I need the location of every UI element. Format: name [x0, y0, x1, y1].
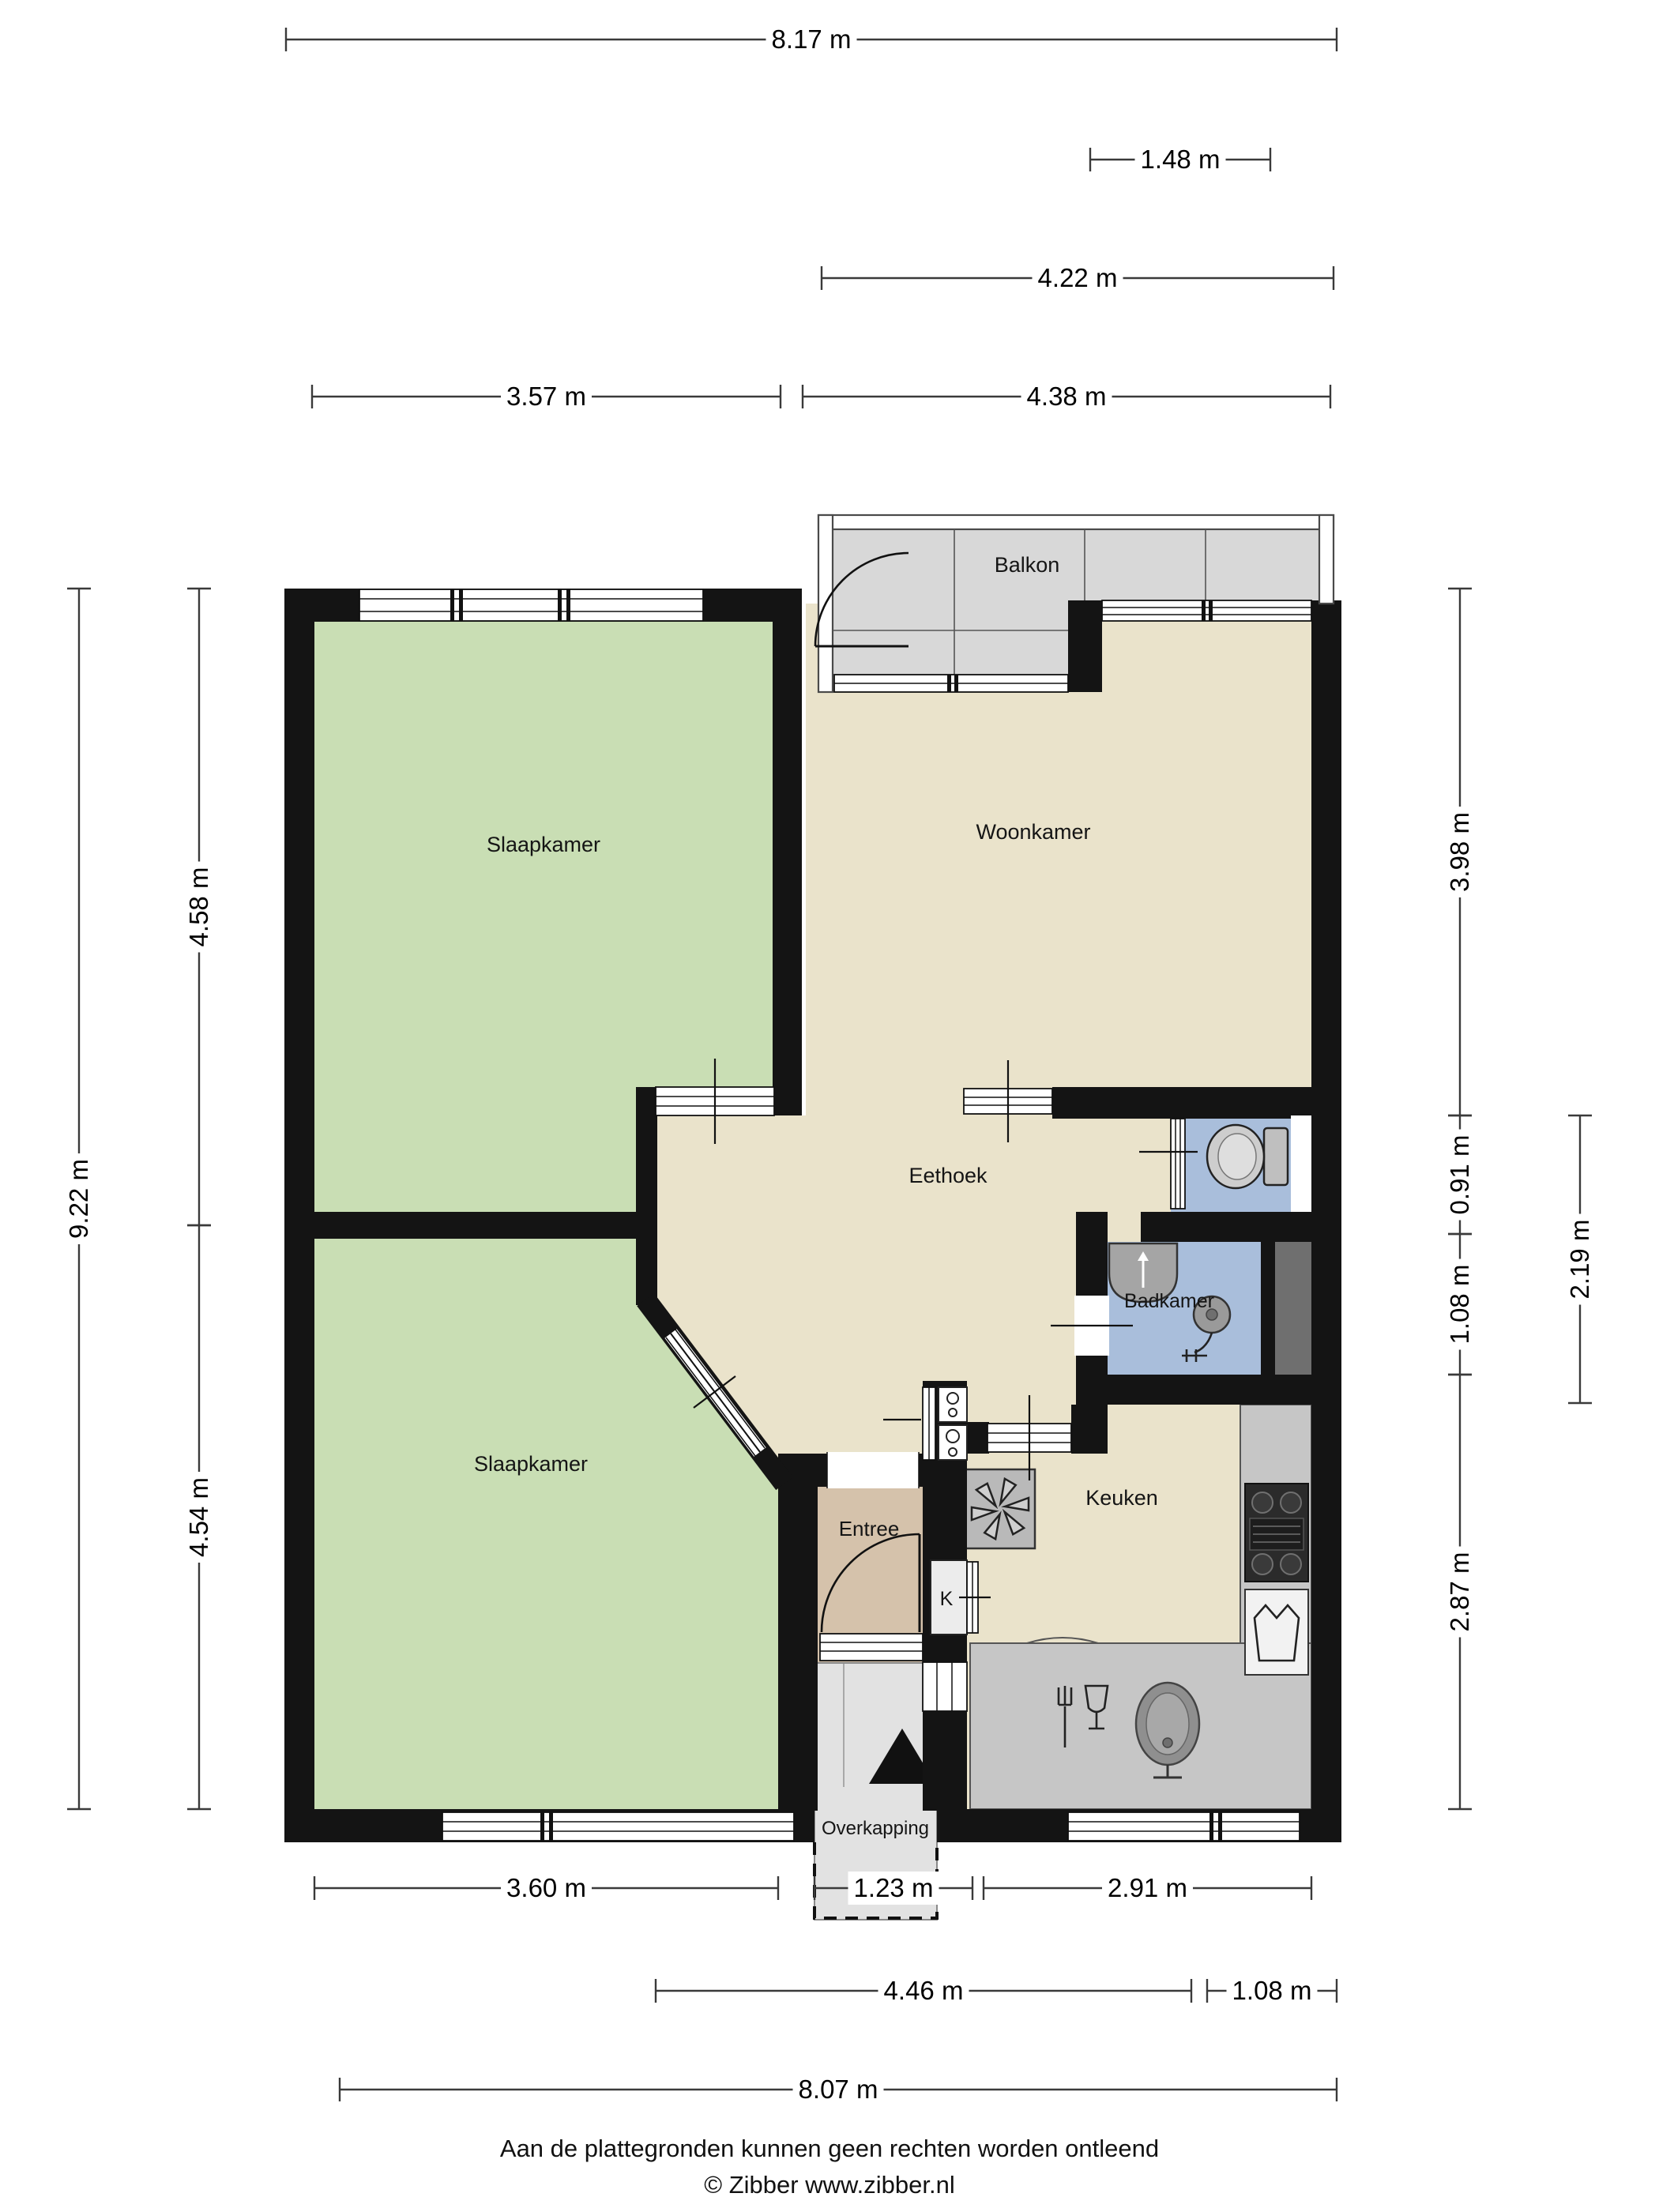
dimension-label: 4.58 m	[184, 867, 213, 947]
dimension-label: 8.17 m	[772, 24, 852, 54]
dimension-label: 4.22 m	[1038, 263, 1118, 292]
room-label-eethoek: Eethoek	[908, 1164, 987, 1187]
dimension-label: 2.87 m	[1445, 1552, 1474, 1632]
dimension-label: 4.46 m	[884, 1976, 964, 2005]
window-living-balcony-left	[834, 675, 1068, 692]
dimension-label: 2.19 m	[1565, 1220, 1594, 1300]
footer-disclaimer: Aan de plattegronden kunnen geen rechten…	[0, 2135, 1659, 2163]
threshold-front-door	[820, 1634, 923, 1661]
footer-copyright: © Zibber www.zibber.nl	[0, 2171, 1659, 2199]
room-label-badkamer: Badkamer	[1124, 1290, 1214, 1312]
dimension-2.87m-11: 2.87 m	[1443, 1375, 1477, 1809]
toilet-icon	[1207, 1125, 1288, 1188]
room-label-slaapkamer-1: Slaapkamer	[487, 833, 600, 856]
window-kitchen-bottom	[1068, 1812, 1300, 1841]
dimension-4.46m-16: 4.46 m	[656, 1974, 1191, 2007]
dimension-label: 2.91 m	[1108, 1873, 1187, 1902]
window-canopy-kitchen	[923, 1662, 967, 1711]
dimension-8.07m-18: 8.07 m	[340, 2073, 1337, 2106]
dimension-label: 8.07 m	[799, 2075, 878, 2104]
dimension-label: 1.08 m	[1445, 1265, 1474, 1345]
room-label-woonkamer: Woonkamer	[976, 820, 1090, 844]
dimension-9.22m-5: 9.22 m	[62, 589, 96, 1809]
dimension-3.60m-13: 3.60 m	[314, 1872, 778, 1905]
dimension-0.91m-9: 0.91 m	[1443, 1115, 1477, 1234]
dimension-label: 0.91 m	[1445, 1135, 1474, 1215]
window-bedroom1-top	[359, 589, 703, 621]
dimension-4.38m-4: 4.38 m	[803, 380, 1330, 413]
dimension-4.58m-6: 4.58 m	[182, 589, 216, 1225]
window-living-balcony-right	[1102, 600, 1311, 621]
floor-balcony-right	[1068, 529, 1319, 602]
dimension-label: 1.08 m	[1232, 1976, 1312, 2005]
dimension-4.54m-7: 4.54 m	[182, 1225, 216, 1809]
dimension-2.91m-15: 2.91 m	[984, 1872, 1311, 1905]
dimension-label: 4.38 m	[1027, 382, 1107, 411]
dimension-4.22m-2: 4.22 m	[822, 261, 1334, 295]
room-label-overkapping: Overkapping	[822, 1818, 929, 1839]
window-bedroom2-bottom	[442, 1812, 794, 1841]
room-label-slaapkamer-2: Slaapkamer	[474, 1452, 588, 1476]
floor-balcony-left	[833, 529, 1068, 676]
dimension-label: 9.22 m	[64, 1159, 93, 1239]
opening-dining-hall	[827, 1452, 919, 1488]
floorplan-canvas: BalkonSlaapkamerWoonkamerEethoekBadkamer…	[0, 0, 1659, 2212]
room-label-kast: K	[940, 1588, 954, 1610]
dimension-label: 3.98 m	[1445, 812, 1474, 892]
dimension-2.19m-12: 2.19 m	[1563, 1115, 1597, 1403]
dimension-label: 3.57 m	[506, 382, 586, 411]
dimension-label: 1.48 m	[1141, 145, 1221, 174]
fridge-icon	[1245, 1589, 1308, 1675]
dimension-8.17m-0: 8.17 m	[286, 23, 1337, 56]
dimension-1.08m-17: 1.08 m	[1207, 1974, 1337, 2007]
dimension-label: 4.54 m	[184, 1477, 213, 1557]
dimension-3.98m-8: 3.98 m	[1443, 589, 1477, 1115]
dimension-label: 3.60 m	[506, 1873, 586, 1902]
stove-icon	[1245, 1484, 1308, 1582]
dimension-3.57m-3: 3.57 m	[312, 380, 781, 413]
room-label-entree: Entree	[839, 1517, 900, 1540]
dimension-1.08m-10: 1.08 m	[1443, 1234, 1477, 1375]
room-label-balkon: Balkon	[995, 553, 1060, 577]
toilet-niche	[1291, 1115, 1311, 1212]
dimension-label: 1.23 m	[854, 1873, 934, 1902]
room-label-keuken: Keuken	[1085, 1486, 1158, 1510]
dimension-1.48m-1: 1.48 m	[1090, 143, 1270, 176]
